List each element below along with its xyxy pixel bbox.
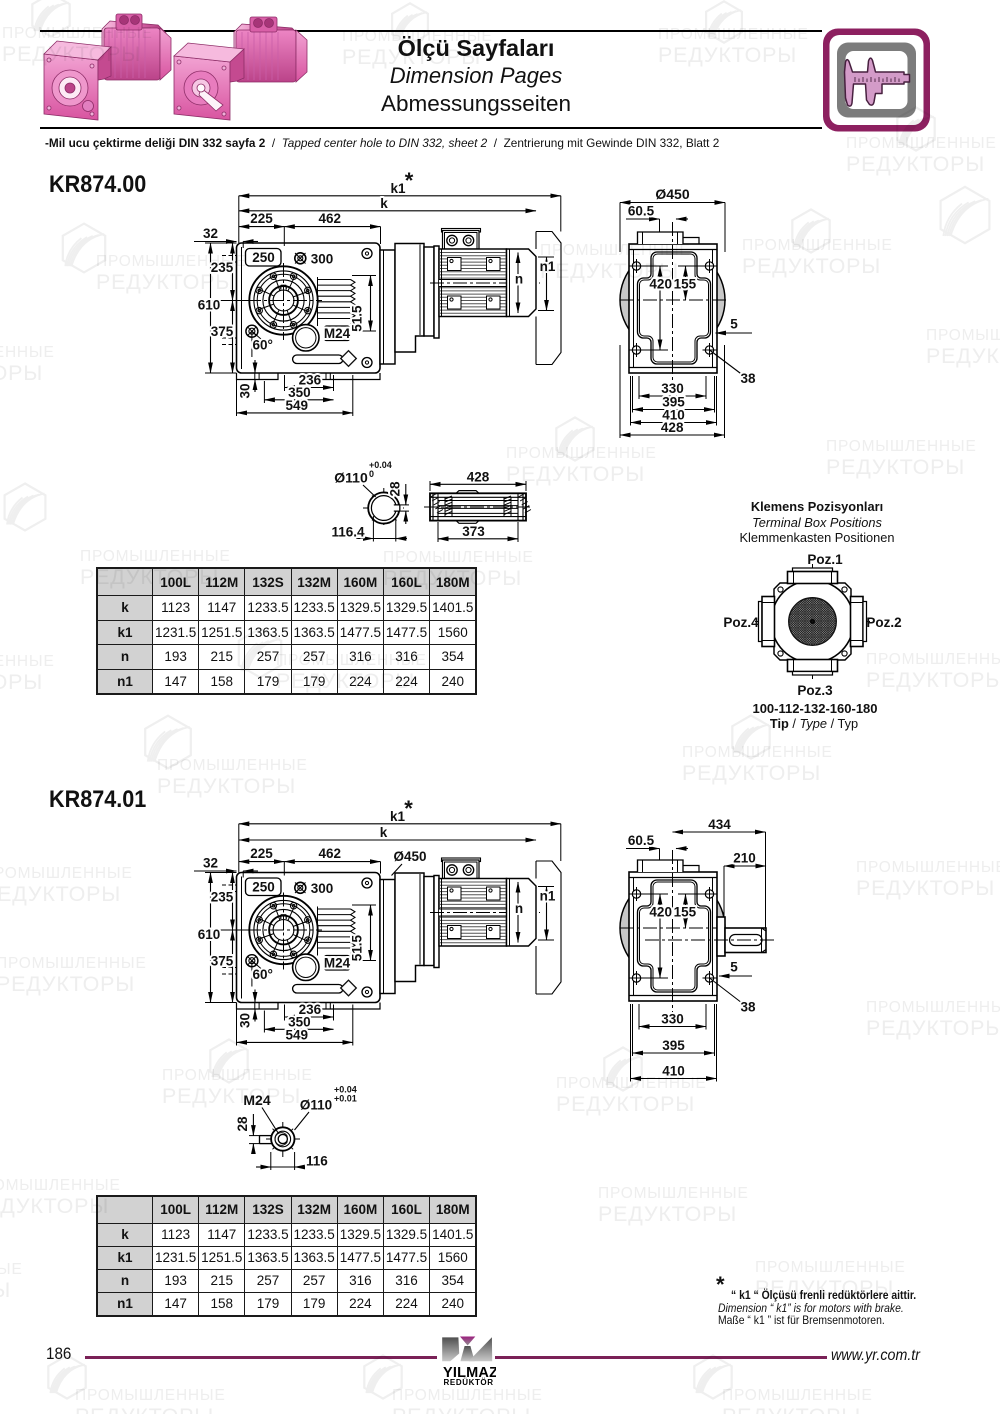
svg-text:30: 30 — [238, 1013, 253, 1028]
svg-text:*: * — [405, 168, 414, 193]
svg-text:375: 375 — [211, 324, 234, 339]
svg-text:610: 610 — [198, 927, 221, 942]
svg-text:k: k — [380, 196, 388, 211]
svg-text:420: 420 — [649, 905, 672, 920]
svg-text:51.5: 51.5 — [350, 305, 365, 332]
svg-text:610: 610 — [198, 298, 221, 313]
svg-text:434: 434 — [708, 817, 731, 832]
svg-text:Ø110: Ø110 — [300, 1098, 332, 1113]
svg-text:250: 250 — [252, 880, 275, 895]
svg-text:235: 235 — [211, 890, 234, 905]
svg-text:462: 462 — [319, 846, 342, 861]
svg-text:428: 428 — [467, 469, 490, 484]
svg-text:462: 462 — [319, 211, 342, 226]
svg-text:51.5: 51.5 — [350, 934, 365, 961]
svg-text:549: 549 — [286, 398, 309, 413]
svg-text:n1: n1 — [540, 889, 556, 904]
svg-text:k1: k1 — [390, 809, 406, 824]
svg-text:60.5: 60.5 — [628, 204, 655, 219]
svg-text:REDÜKTÖR: REDÜKTÖR — [444, 1378, 494, 1386]
svg-text:k1: k1 — [390, 181, 406, 196]
svg-text:38: 38 — [740, 371, 756, 386]
svg-text:*: * — [404, 796, 413, 821]
svg-text:Ø450: Ø450 — [655, 186, 689, 202]
svg-text:549: 549 — [286, 1028, 309, 1043]
svg-text:428: 428 — [661, 420, 684, 435]
svg-text:300: 300 — [311, 881, 334, 896]
svg-text:28: 28 — [235, 1116, 250, 1132]
svg-text:M24: M24 — [324, 326, 351, 341]
svg-text:250: 250 — [252, 250, 275, 265]
svg-text:+0.01: +0.01 — [334, 1094, 357, 1104]
svg-text:k: k — [380, 825, 388, 840]
svg-text:30: 30 — [238, 383, 253, 398]
svg-text:M24: M24 — [243, 1092, 270, 1108]
svg-text:60.5: 60.5 — [628, 833, 655, 848]
svg-text:n: n — [515, 901, 523, 916]
svg-text:n1: n1 — [540, 259, 556, 274]
svg-text:210: 210 — [733, 851, 756, 866]
svg-text:32: 32 — [203, 226, 218, 241]
svg-text:300: 300 — [311, 252, 334, 267]
svg-text:0: 0 — [369, 469, 374, 479]
svg-text:225: 225 — [250, 211, 273, 226]
svg-text:155: 155 — [674, 277, 697, 292]
svg-text:28: 28 — [388, 481, 403, 497]
svg-text:330: 330 — [661, 1012, 684, 1027]
svg-text:5: 5 — [730, 317, 738, 332]
svg-text:420: 420 — [649, 277, 672, 292]
svg-text:n: n — [515, 272, 523, 287]
svg-text:225: 225 — [250, 846, 273, 861]
svg-text:235: 235 — [211, 260, 234, 275]
svg-text:M24: M24 — [324, 955, 351, 970]
svg-text:373: 373 — [462, 524, 485, 539]
svg-text:155: 155 — [674, 905, 697, 920]
svg-text:Ø450: Ø450 — [393, 849, 426, 864]
svg-text:375: 375 — [211, 954, 234, 969]
svg-text:Ø110: Ø110 — [334, 470, 368, 486]
svg-text:395: 395 — [662, 1038, 685, 1053]
svg-text:5: 5 — [730, 960, 738, 975]
svg-text:32: 32 — [203, 856, 218, 871]
svg-text:60°: 60° — [253, 338, 273, 353]
svg-text:38: 38 — [740, 1000, 756, 1015]
svg-text:116.4: 116.4 — [331, 525, 365, 540]
svg-text:60°: 60° — [253, 967, 273, 982]
svg-text:410: 410 — [662, 1064, 685, 1079]
svg-text:116: 116 — [306, 1154, 328, 1169]
